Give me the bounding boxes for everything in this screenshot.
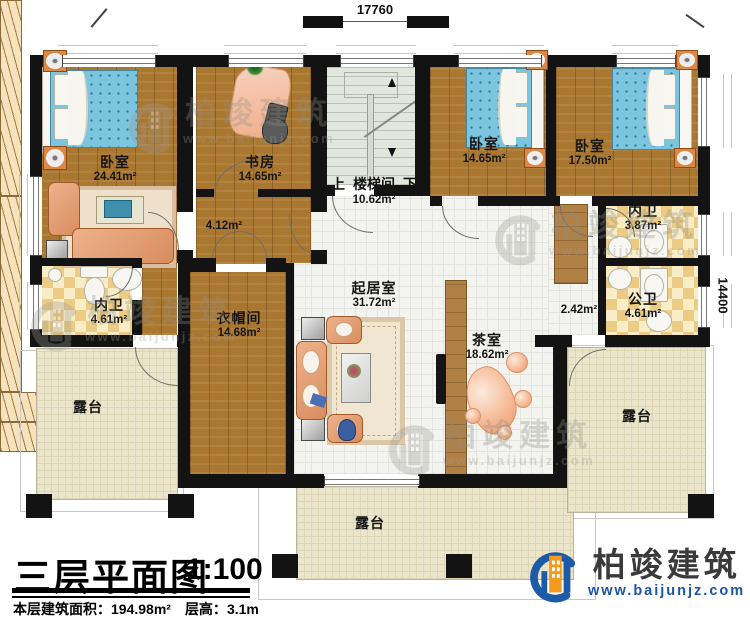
label-corridor: 2.42m² xyxy=(552,304,606,317)
label-bedroom-2: 卧室 14.65m² xyxy=(454,137,514,166)
window xyxy=(228,55,304,67)
nightstand xyxy=(674,148,696,168)
room-area: 14.65m² xyxy=(454,153,514,166)
brand-website: www.baijunjz.com xyxy=(588,583,745,599)
room-area: 14.65m² xyxy=(228,171,292,184)
corner-mark xyxy=(685,14,704,28)
watermark-website: www.baijunjz.com xyxy=(443,453,595,468)
window-sill xyxy=(336,45,416,54)
dimension-tick xyxy=(407,16,449,28)
corner-mark xyxy=(91,8,108,28)
stair-up-text: 上 xyxy=(331,177,345,193)
room-area: 4.61m² xyxy=(614,308,672,321)
wall xyxy=(311,195,327,212)
wall xyxy=(311,250,327,264)
table-tray xyxy=(104,200,132,218)
window xyxy=(698,286,710,328)
stair-arrow-up-icon xyxy=(388,78,396,87)
wall xyxy=(415,55,430,196)
wall xyxy=(478,196,560,206)
room-name: 卧室 xyxy=(560,139,620,155)
room-area: 31.72m² xyxy=(342,297,406,310)
label-terrace-right: 露台 xyxy=(607,409,667,425)
watermark-company: 柏竣建筑 xyxy=(551,210,699,243)
label-study: 书房 14.65m² xyxy=(228,155,292,184)
floor-area-value: 194.98m² xyxy=(111,601,171,617)
bed-sheet xyxy=(68,71,88,145)
sofa xyxy=(296,341,327,420)
window-sill xyxy=(19,282,28,330)
column xyxy=(26,494,52,518)
bed-headboard xyxy=(678,66,692,152)
window-sill xyxy=(58,45,158,54)
column xyxy=(272,554,298,578)
room-area: 2.42m² xyxy=(552,304,606,317)
room-name: 起居室 xyxy=(342,281,406,297)
room-area: 24.41m² xyxy=(80,171,150,184)
window-sill xyxy=(723,74,732,148)
decor-stone xyxy=(514,390,532,408)
bed-sheet xyxy=(498,69,516,145)
watermark-website: www.baijunjz.com xyxy=(85,329,237,344)
watermark-logo-icon xyxy=(492,210,544,268)
room-name: 卧室 xyxy=(454,137,514,153)
watermark-website: www.baijunjz.com xyxy=(549,243,701,258)
cloakroom-wardrobe xyxy=(0,0,22,196)
watermark: 柏竣建筑www.baijunjz.com xyxy=(492,210,701,268)
drawing-scale: 1:100 xyxy=(186,553,263,587)
person-figure xyxy=(338,419,356,441)
label-stairwell-area: 10.62m² xyxy=(330,194,418,207)
window-sill xyxy=(224,45,306,54)
wall xyxy=(546,55,556,196)
column xyxy=(446,554,472,578)
label-stairwell: 上 楼梯间 下 xyxy=(328,177,420,193)
label-terrace-left: 露台 xyxy=(58,400,118,416)
watermark-company: 柏竣建筑 xyxy=(87,296,235,329)
room-name: 楼梯间 xyxy=(353,177,395,193)
label-hallway: 4.12m² xyxy=(194,220,254,233)
watermark: 柏竣建筑www.baijunjz.com xyxy=(126,98,335,156)
watermark-company: 柏竣建筑 xyxy=(445,420,593,453)
wall xyxy=(605,335,710,347)
label-tea: 茶室 18.62m² xyxy=(456,333,518,362)
coffee-table xyxy=(341,353,371,403)
wall xyxy=(178,474,324,488)
nightstand xyxy=(524,148,546,168)
watermark-company: 柏竣建筑 xyxy=(185,98,333,131)
watermark-logo-icon xyxy=(28,296,80,354)
wall xyxy=(132,258,142,268)
dimension-top: 17760 xyxy=(320,2,430,17)
brand-logo-icon xyxy=(526,548,580,604)
brand-logo: 柏竣建筑 www.baijunjz.com xyxy=(526,548,745,604)
stair-rail xyxy=(367,94,374,180)
room-name: 公卫 xyxy=(614,292,672,308)
title-underline xyxy=(12,588,250,593)
title-subline: 本层建筑面积：194.98m² 层高：3.1m xyxy=(13,599,259,617)
side-table xyxy=(46,240,68,260)
column xyxy=(168,494,194,518)
bed-headboard xyxy=(530,66,544,150)
dimension-tick xyxy=(303,16,343,28)
tv xyxy=(436,354,446,404)
wall xyxy=(258,189,311,197)
label-bath-public: 公卫 4.61m² xyxy=(614,292,672,321)
label-terrace-bottom: 露台 xyxy=(340,516,400,532)
end-table xyxy=(301,418,325,441)
wall xyxy=(190,258,216,272)
wall xyxy=(430,196,442,206)
floor-area-text: 本层建筑面积：194.98m² xyxy=(13,599,171,617)
label-living: 起居室 31.72m² xyxy=(342,281,406,310)
label-bedroom-master: 卧室 24.41m² xyxy=(80,155,150,184)
shower-head xyxy=(48,268,62,282)
stair-down-text: 下 xyxy=(403,177,417,193)
room-name: 茶室 xyxy=(456,333,518,349)
window xyxy=(30,176,42,256)
room-name: 露台 xyxy=(340,516,400,532)
nightstand xyxy=(43,146,67,170)
window xyxy=(698,77,710,147)
window-sill xyxy=(612,45,678,54)
wall xyxy=(286,263,294,474)
column xyxy=(688,494,714,518)
window xyxy=(62,55,156,67)
brand-company-name: 柏竣建筑 xyxy=(593,548,741,583)
wall xyxy=(266,258,286,272)
room-area: 17.50m² xyxy=(560,155,620,168)
armchair xyxy=(326,316,362,344)
room-area: 10.62m² xyxy=(330,194,418,207)
sink xyxy=(608,268,632,290)
nightstand xyxy=(676,50,698,70)
stair-arrow-down-icon xyxy=(388,148,396,157)
wall xyxy=(196,189,214,197)
title-underline-thin xyxy=(12,596,250,598)
watermark: 柏竣建筑www.baijunjz.com xyxy=(386,420,595,478)
end-table xyxy=(301,317,325,340)
floor-area-label: 本层建筑面积： xyxy=(13,601,111,617)
window xyxy=(340,55,414,67)
window xyxy=(616,55,676,67)
watermark: 柏竣建筑www.baijunjz.com xyxy=(28,296,237,354)
room-area: 4.12m² xyxy=(194,220,254,233)
floor-height-text: 层高：3.1m xyxy=(185,599,259,617)
dimension-right: 14400 xyxy=(716,268,731,324)
watermark-website: www.baijunjz.com xyxy=(183,131,335,146)
room-name: 书房 xyxy=(228,155,292,171)
room-name: 露台 xyxy=(58,400,118,416)
window-sill xyxy=(19,174,28,256)
wall xyxy=(42,258,142,266)
room-area: 18.62m² xyxy=(456,349,518,362)
watermark-logo-icon xyxy=(386,420,438,478)
watermark-logo-icon xyxy=(126,98,178,156)
floor-height-label: 层高： xyxy=(185,601,227,617)
floor-plan: 卧室 24.41m² 书房 14.65m² 4.12m² 上 楼梯间 下 10.… xyxy=(0,0,750,617)
room-name: 露台 xyxy=(607,409,667,425)
window xyxy=(458,55,542,67)
window-sill xyxy=(723,212,732,256)
bed-sheet xyxy=(646,70,664,146)
table-flowers xyxy=(347,364,361,378)
room-name: 卧室 xyxy=(80,155,150,171)
floor-height-value: 3.1m xyxy=(227,601,259,617)
label-bedroom-3: 卧室 17.50m² xyxy=(560,139,620,168)
